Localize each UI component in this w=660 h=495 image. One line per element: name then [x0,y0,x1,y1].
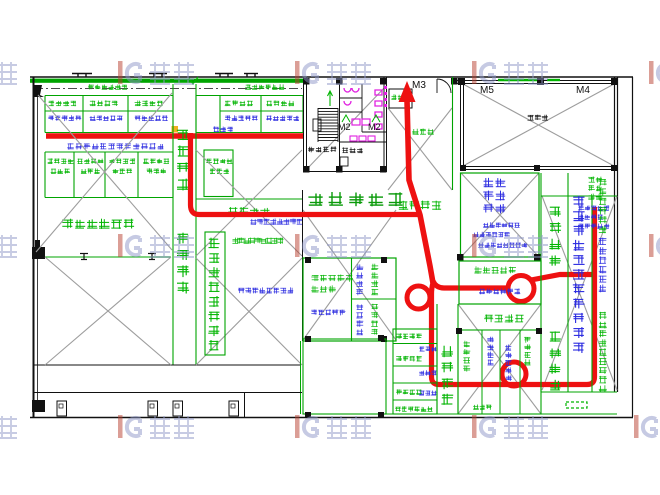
svg-text:M3: M3 [412,80,426,91]
svg-text:M2: M2 [368,122,381,132]
svg-text:M4: M4 [576,85,590,96]
svg-text:M2: M2 [338,122,351,132]
svg-text:M5: M5 [480,85,494,96]
